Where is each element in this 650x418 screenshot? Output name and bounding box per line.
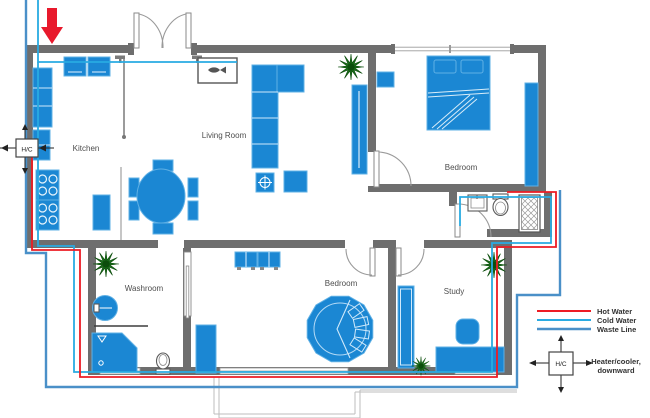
study-label: Study — [444, 287, 464, 296]
room-bathroom — [468, 194, 540, 232]
living-room-label: Living Room — [202, 131, 247, 140]
kitchen-island — [93, 195, 110, 230]
shower — [519, 195, 540, 232]
wall-door-pier — [372, 240, 396, 248]
washroom-toilet — [156, 353, 170, 374]
down-arrow-icon — [41, 8, 63, 44]
wall-bedroom1-left — [368, 53, 376, 152]
entrance-double-door — [128, 13, 197, 55]
kitchen-wall-cabinet — [88, 57, 110, 76]
sectional-sofa — [252, 65, 304, 168]
legend-cold-water: Cold Water — [537, 316, 636, 325]
bedroom-window — [391, 44, 514, 54]
kitchen-label: Kitchen — [73, 144, 100, 153]
wall-hallway — [368, 184, 546, 192]
legend-hc-label: H/C — [555, 361, 567, 368]
wall-lower-right — [504, 248, 512, 367]
plant-icon — [481, 252, 507, 278]
pipe-valve-icon — [115, 56, 125, 60]
bedroom1-label: Bedroom — [445, 163, 478, 172]
hall-mirror-closet — [352, 85, 367, 174]
wall-bedroom-study-divider — [388, 248, 396, 367]
wall-cabinets — [235, 252, 280, 270]
nightstand — [377, 72, 394, 87]
double-bed — [427, 56, 490, 130]
dining-table — [137, 169, 185, 223]
hc-unit-label: H/C — [21, 147, 33, 154]
washroom-opening — [158, 240, 184, 248]
bedroom2-door — [345, 240, 375, 276]
plant-icon — [93, 251, 119, 277]
bedroom2-label: Bedroom — [325, 279, 358, 288]
dining-set — [129, 160, 198, 234]
room-bedroom1: Bedroom — [377, 56, 538, 186]
cold-water-label: Cold Water — [597, 316, 636, 325]
washroom-label: Washroom — [125, 284, 164, 293]
heater-note-line2: downward — [597, 366, 635, 375]
hot-water-label: Hot Water — [597, 307, 632, 316]
dining-chair — [188, 178, 198, 197]
walkway-outline — [214, 377, 517, 418]
legend-waste-line: Waste Line — [537, 325, 636, 334]
dining-chair — [188, 201, 198, 220]
coffee-table — [256, 173, 274, 192]
ottoman — [284, 171, 307, 192]
plant-icon — [338, 54, 364, 80]
kitchen-wall-cabinet — [64, 57, 86, 76]
study-door — [396, 240, 424, 276]
office-chair — [456, 319, 479, 344]
room-washroom: Washroom — [92, 284, 170, 374]
bookshelf — [398, 286, 414, 368]
floor-plan-canvas: Kitchen Living Room — [0, 0, 650, 418]
legend-hc-unit: H/C Heater/cooler, downward — [529, 335, 641, 393]
pocket-door — [184, 252, 191, 318]
bedroom1-door — [368, 151, 411, 187]
dining-chair — [153, 223, 173, 234]
room-kitchen: Kitchen — [33, 57, 198, 234]
wall-right — [538, 45, 546, 185]
room-living: Living Room — [198, 58, 367, 192]
wardrobe — [525, 83, 538, 186]
corner-shower — [92, 333, 137, 372]
heater-note-line1: Heater/cooler, — [591, 357, 641, 366]
room-bedroom2: Bedroom — [196, 252, 373, 373]
stove — [36, 170, 59, 230]
wardrobe — [196, 325, 216, 373]
legend-hot-water: Hot Water — [537, 307, 632, 316]
waste-line-label: Waste Line — [597, 325, 636, 334]
desk — [436, 347, 504, 372]
round-sink — [93, 296, 118, 321]
legend: Hot Water Cold Water Waste Line H/C Heat… — [529, 307, 641, 393]
round-bed — [307, 296, 373, 362]
room-study: Study — [398, 286, 504, 372]
